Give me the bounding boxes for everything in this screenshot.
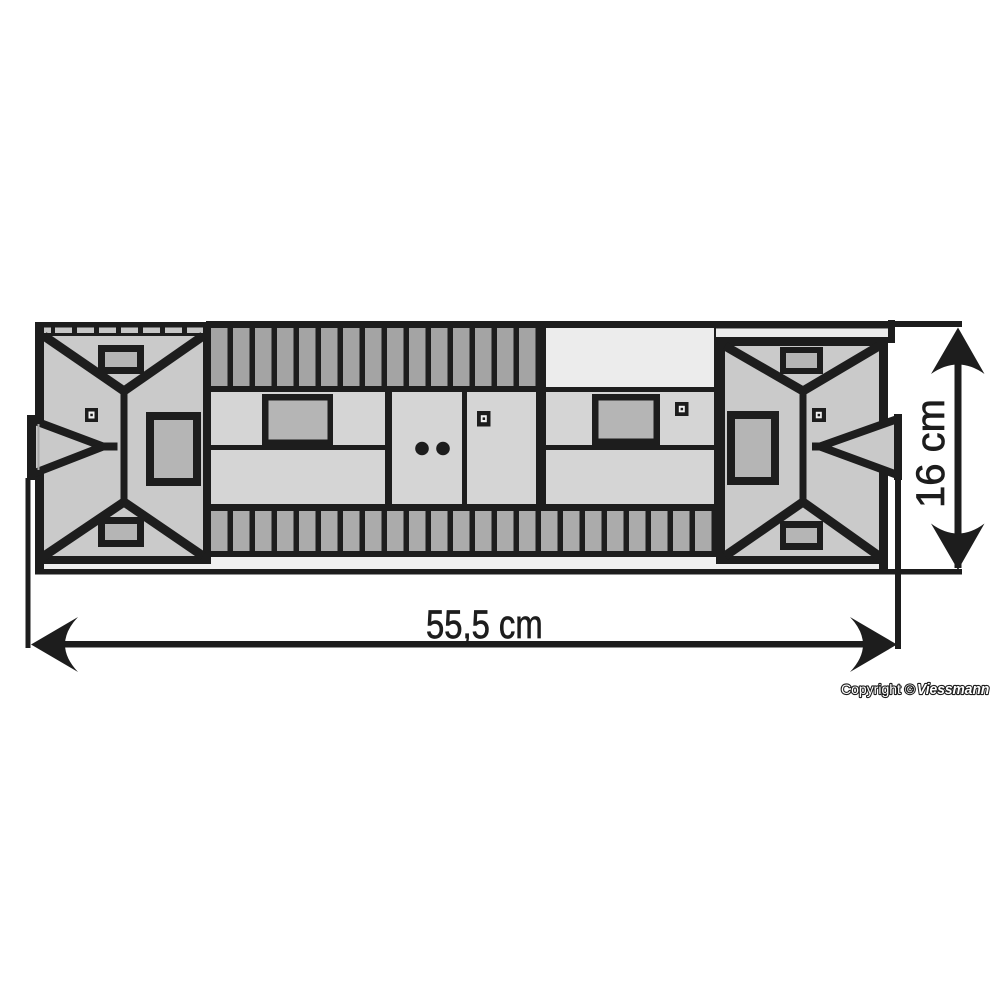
svg-text:Copyright ©: Copyright ©	[841, 681, 916, 697]
svg-text:55,5 cm: 55,5 cm	[426, 602, 543, 647]
svg-text:16 cm: 16 cm	[909, 399, 953, 508]
svg-text:Viessmann: Viessmann	[917, 682, 990, 699]
